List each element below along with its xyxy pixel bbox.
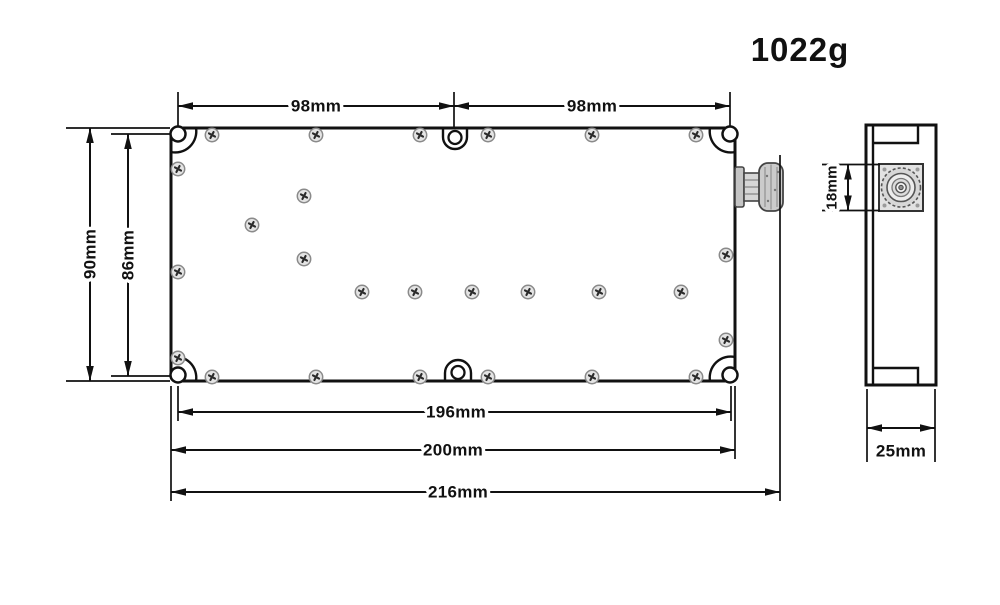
dim-label-90mm: 90mm	[81, 229, 100, 279]
screw	[309, 370, 322, 383]
front-view	[171, 127, 784, 384]
module-plate-outline	[171, 128, 735, 381]
screw	[205, 370, 218, 383]
screw	[719, 333, 732, 346]
screw	[465, 285, 478, 298]
screw	[689, 128, 702, 141]
screw	[171, 265, 184, 278]
screw	[205, 128, 218, 141]
rf-connector-side	[879, 164, 923, 211]
mounting-hole	[171, 368, 186, 383]
screw	[297, 252, 310, 265]
screw	[521, 285, 534, 298]
mounting-hole	[449, 131, 462, 144]
screw	[408, 285, 421, 298]
screw	[481, 370, 494, 383]
screw	[592, 285, 605, 298]
dim-label-86mm: 86mm	[119, 230, 138, 280]
dim-label-216mm: 216mm	[428, 483, 488, 502]
dim-label-200mm: 200mm	[423, 441, 483, 460]
screw	[585, 370, 598, 383]
screw	[171, 351, 184, 364]
screw	[674, 285, 687, 298]
screw	[585, 128, 598, 141]
screw	[309, 128, 322, 141]
connector-flange	[735, 167, 744, 207]
dim-label-98mm-right: 98mm	[567, 97, 617, 116]
technical-drawing: 1022g	[0, 0, 1000, 605]
dim-label-98mm-left: 98mm	[291, 97, 341, 116]
weight-label: 1022g	[751, 31, 850, 68]
screw	[355, 285, 368, 298]
dim-label-196mm: 196mm	[426, 403, 486, 422]
screw	[719, 248, 732, 261]
screw	[171, 162, 184, 175]
screw	[413, 370, 426, 383]
screw	[481, 128, 494, 141]
mounting-hole	[723, 127, 738, 142]
mounting-hole	[171, 127, 186, 142]
screw	[413, 128, 426, 141]
technical-drawing-page: 1022g	[0, 0, 1000, 605]
mounting-hole	[723, 368, 738, 383]
dim-label-18mm: 18mm	[824, 165, 841, 210]
rf-connector-front	[735, 163, 783, 211]
screw	[689, 370, 702, 383]
dim-label-25mm: 25mm	[876, 442, 926, 461]
screw	[297, 189, 310, 202]
mounting-hole	[452, 366, 465, 379]
screw	[245, 218, 258, 231]
